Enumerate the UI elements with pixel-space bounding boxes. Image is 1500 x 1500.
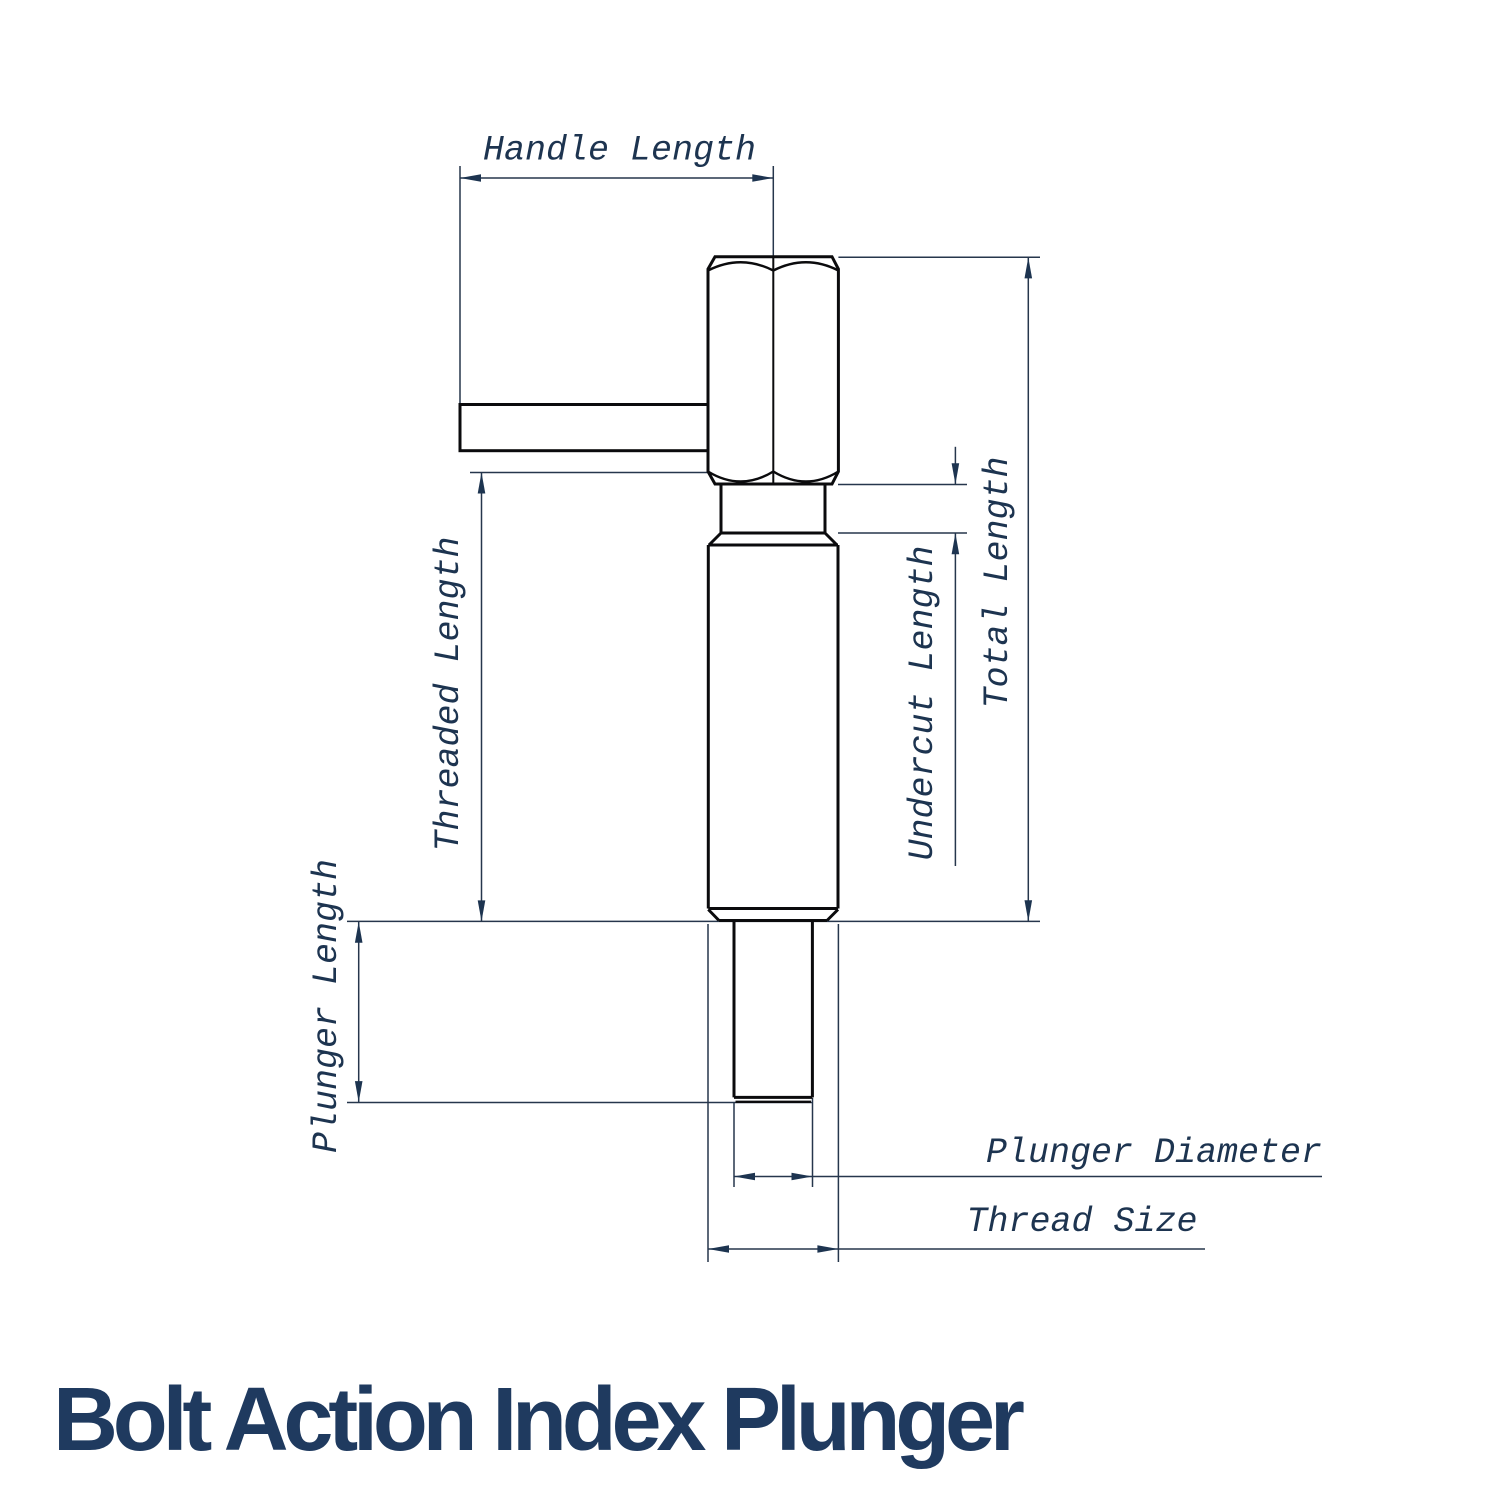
svg-text:Threaded Length: Threaded Length [429,536,469,851]
svg-text:Plunger Diameter: Plunger Diameter [986,1133,1322,1173]
svg-text:Plunger Length: Plunger Length [307,859,347,1153]
svg-text:Handle Length: Handle Length [483,131,756,171]
svg-text:Thread Size: Thread Size [967,1202,1198,1242]
svg-text:Total Length: Total Length [978,456,1018,708]
svg-text:Bolt Action Index Plunger: Bolt Action Index Plunger [53,1370,1024,1470]
svg-text:Undercut Length: Undercut Length [903,545,943,860]
